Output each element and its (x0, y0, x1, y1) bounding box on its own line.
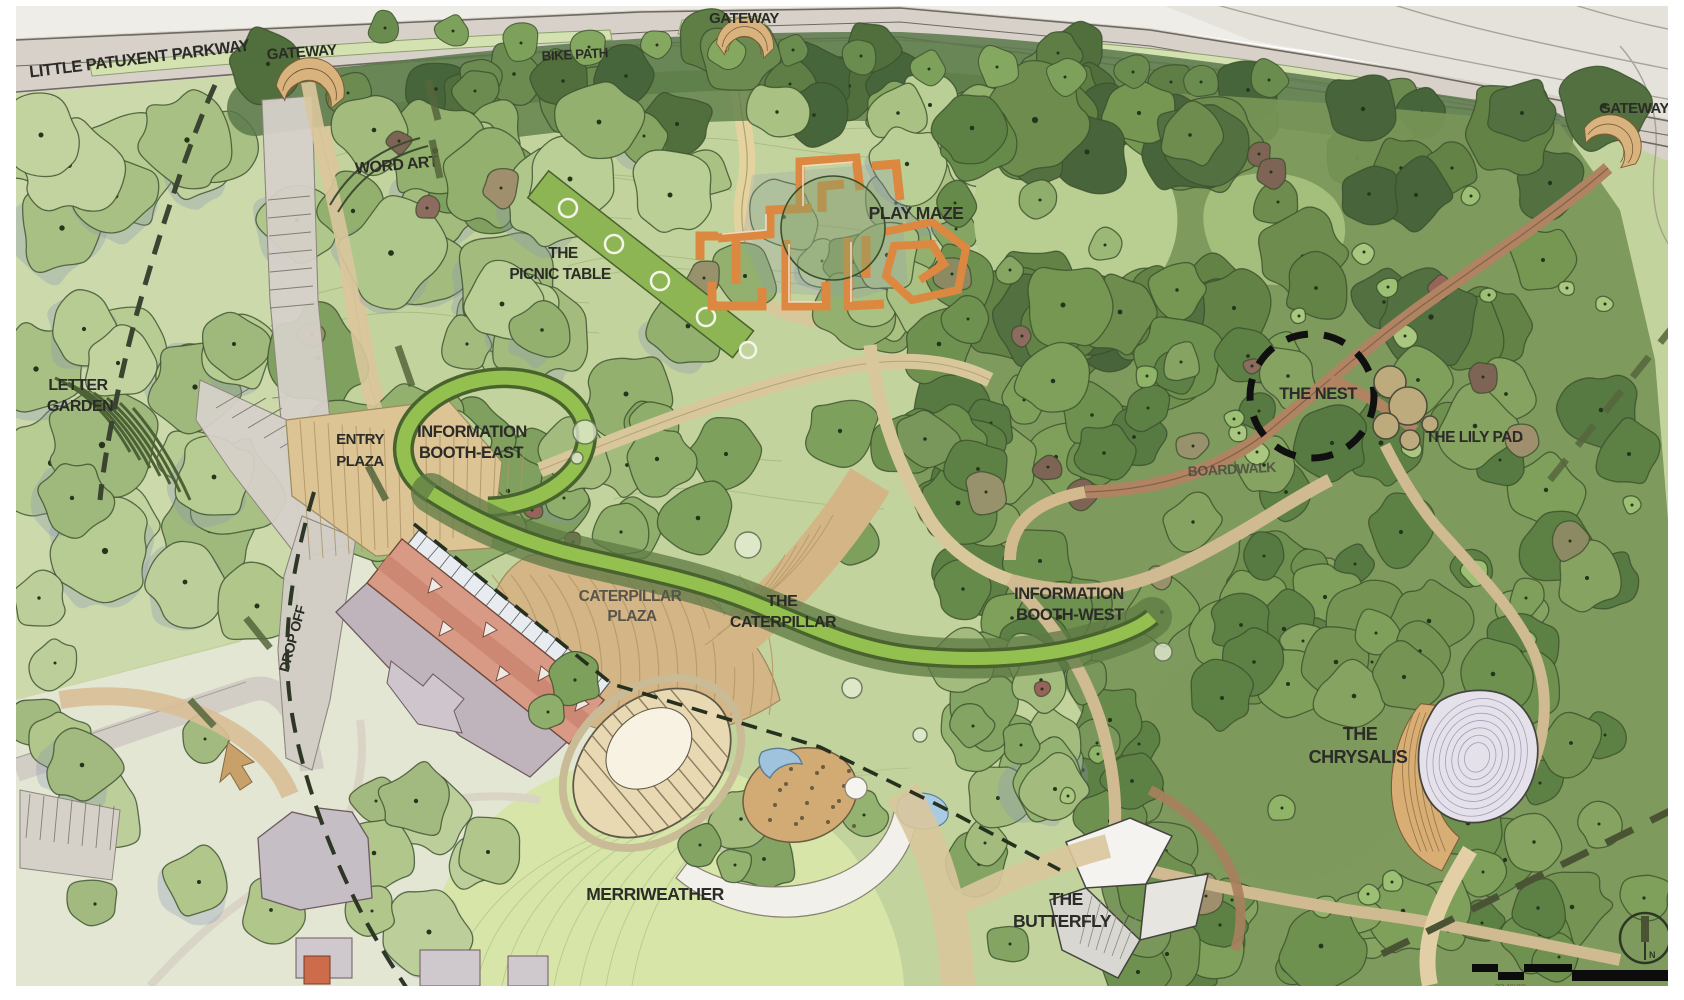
svg-text:CATERPILLAR: CATERPILLAR (730, 614, 837, 631)
svg-text:GARDEN: GARDEN (47, 398, 113, 415)
svg-text:N: N (1649, 950, 1655, 960)
svg-text:INFORMATION: INFORMATION (1014, 585, 1124, 603)
svg-text:THE: THE (548, 245, 578, 262)
svg-text:GATEWAY: GATEWAY (1599, 100, 1669, 117)
svg-text:THE: THE (1049, 889, 1083, 909)
svg-text:THE: THE (767, 593, 798, 610)
svg-text:THE LILY PAD: THE LILY PAD (1425, 429, 1522, 446)
svg-text:PLAZA: PLAZA (607, 608, 656, 625)
svg-text:MERRIWEATHER: MERRIWEATHER (586, 884, 724, 904)
svg-text:PLAZA: PLAZA (336, 453, 384, 470)
svg-text:THE NEST: THE NEST (1279, 385, 1357, 403)
svg-text:BOOTH-WEST: BOOTH-WEST (1016, 606, 1124, 624)
svg-text:PICNIC TABLE: PICNIC TABLE (509, 266, 611, 283)
svg-text:INFORMATION: INFORMATION (417, 423, 527, 441)
svg-text:LETTER: LETTER (48, 377, 108, 394)
svg-text:THE: THE (1343, 724, 1378, 744)
svg-text:BOOTH-EAST: BOOTH-EAST (419, 444, 524, 462)
svg-text:ENTRY: ENTRY (336, 431, 384, 448)
svg-text:GATEWAY: GATEWAY (709, 10, 779, 27)
svg-text:CHRYSALIS: CHRYSALIS (1309, 747, 1408, 767)
svg-text:CATERPILLAR: CATERPILLAR (579, 588, 682, 605)
svg-text:BUTTERFLY: BUTTERFLY (1013, 911, 1112, 931)
svg-text:PLAY MAZE: PLAY MAZE (869, 203, 964, 223)
